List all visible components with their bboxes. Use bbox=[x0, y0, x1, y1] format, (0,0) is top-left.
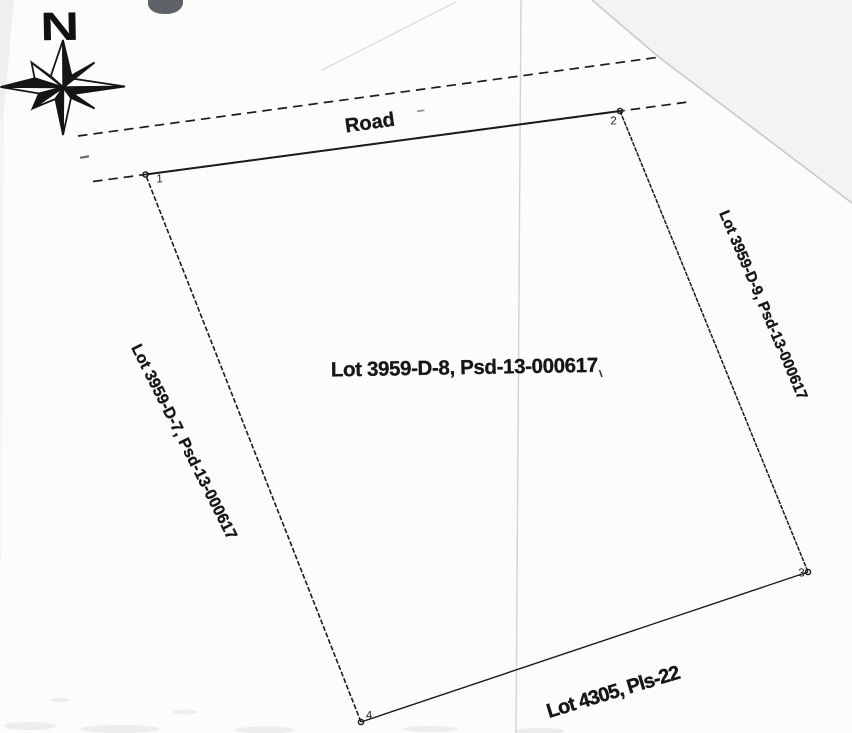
svg-text:4: 4 bbox=[366, 710, 373, 722]
svg-text:3: 3 bbox=[798, 567, 805, 579]
svg-text:2: 2 bbox=[610, 115, 617, 127]
svg-text:Lot 3959-D-8, Psd-13-000617: Lot 3959-D-8, Psd-13-000617 bbox=[331, 354, 598, 382]
svg-text:N: N bbox=[40, 4, 80, 49]
svg-text:1: 1 bbox=[156, 173, 163, 185]
